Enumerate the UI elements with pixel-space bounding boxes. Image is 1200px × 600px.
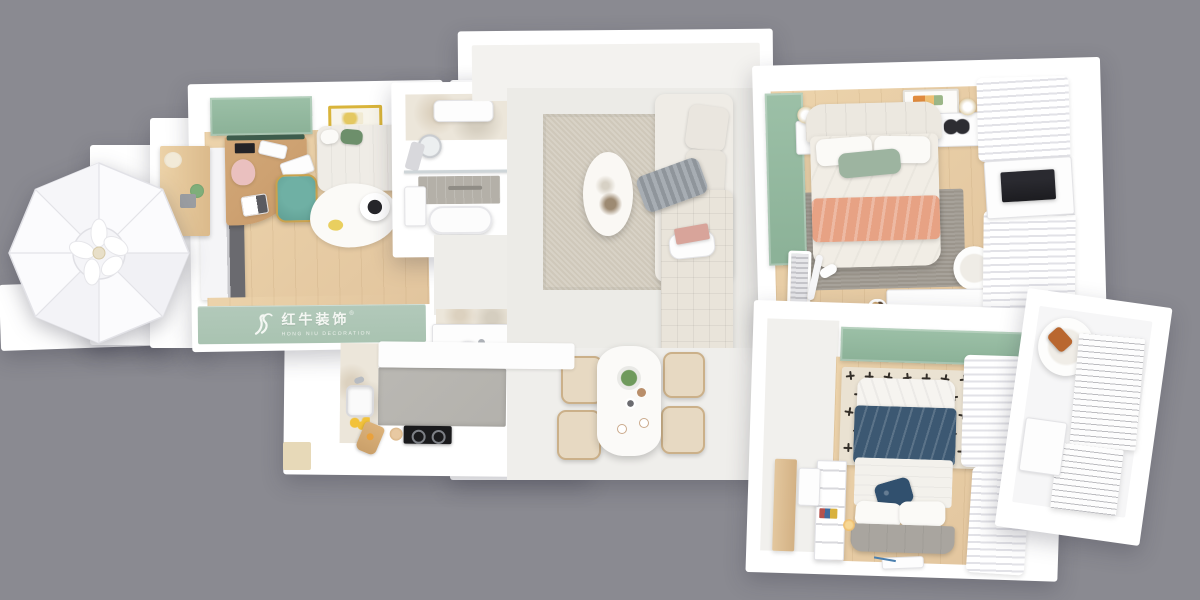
floor-plan-render: 红牛装饰® HONG NIU DECORATION xyxy=(0,0,1200,600)
master-curtain-top xyxy=(976,76,1070,162)
kitchen-top-counter xyxy=(378,341,574,369)
kitchen xyxy=(283,326,591,477)
kitchen-counter-gray xyxy=(378,367,507,426)
nightstand-decor-mugs xyxy=(943,118,969,135)
bed2-pillow-right xyxy=(899,501,945,526)
corridor-appliance xyxy=(798,467,821,506)
floor-magazines xyxy=(240,193,269,217)
burner-left xyxy=(412,430,426,444)
coffee-table xyxy=(583,152,633,236)
table-plant xyxy=(617,366,641,390)
tv-screen xyxy=(1000,169,1056,202)
art-motif xyxy=(341,112,363,124)
rug-plus-mark xyxy=(843,443,852,452)
dining-chair-bottom-right xyxy=(661,406,705,454)
board-garnish xyxy=(367,433,374,440)
table-cup-2 xyxy=(639,418,649,428)
window-blinds-upper xyxy=(1070,333,1146,450)
watermark-registered-mark: ® xyxy=(349,311,353,317)
sofa-back-cushion-1 xyxy=(684,103,730,152)
water-heater xyxy=(404,186,426,226)
laptop xyxy=(235,143,255,153)
bed2-headboard xyxy=(850,523,955,554)
study-green-cabinet xyxy=(210,96,313,136)
sofa-chaise xyxy=(661,190,733,358)
cooktop xyxy=(404,426,452,445)
table-cup-1 xyxy=(617,424,627,434)
shower-arm xyxy=(404,141,425,172)
sofa-green-pillow xyxy=(340,128,363,145)
table-plate-1 xyxy=(625,398,636,409)
shelf-books xyxy=(819,508,837,519)
sheer-pink-chair xyxy=(231,159,255,185)
table-plate-2 xyxy=(637,388,646,397)
patio-umbrella xyxy=(4,158,194,348)
burner-right xyxy=(432,430,446,444)
lounge-cabinet xyxy=(1019,417,1068,476)
kitchen-sink xyxy=(346,385,374,417)
watermark-title: 红牛装饰 xyxy=(281,311,349,328)
rug-plus-mark xyxy=(845,371,855,381)
hongniu-bull-logo xyxy=(252,313,274,337)
wooden-bowl xyxy=(390,428,403,441)
corridor-wood-cabinet xyxy=(772,459,797,552)
rug-plus-mark xyxy=(844,406,854,416)
peach-blanket xyxy=(811,195,940,242)
dining-chair-top-right xyxy=(663,352,705,398)
